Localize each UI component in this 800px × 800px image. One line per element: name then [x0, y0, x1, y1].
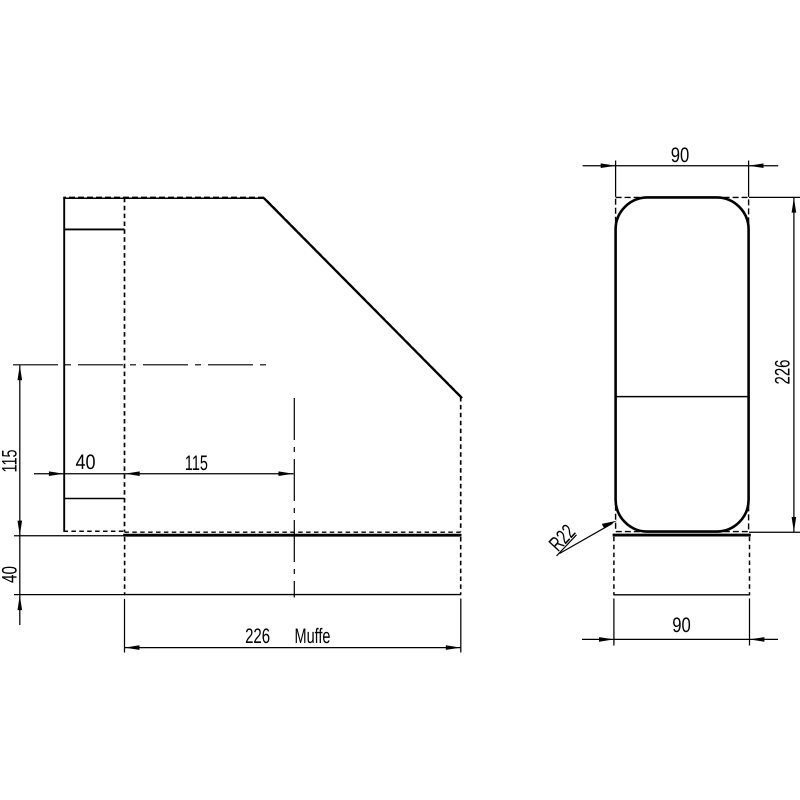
svg-text:Muffe: Muffe: [295, 625, 331, 648]
svg-text:115: 115: [185, 452, 208, 475]
svg-text:115: 115: [0, 450, 22, 473]
svg-text:90: 90: [672, 614, 691, 637]
svg-text:40: 40: [76, 451, 96, 474]
svg-text:90: 90: [671, 144, 690, 167]
svg-text:226: 226: [245, 625, 270, 648]
svg-text:40: 40: [0, 566, 22, 583]
svg-text:226: 226: [772, 360, 795, 385]
